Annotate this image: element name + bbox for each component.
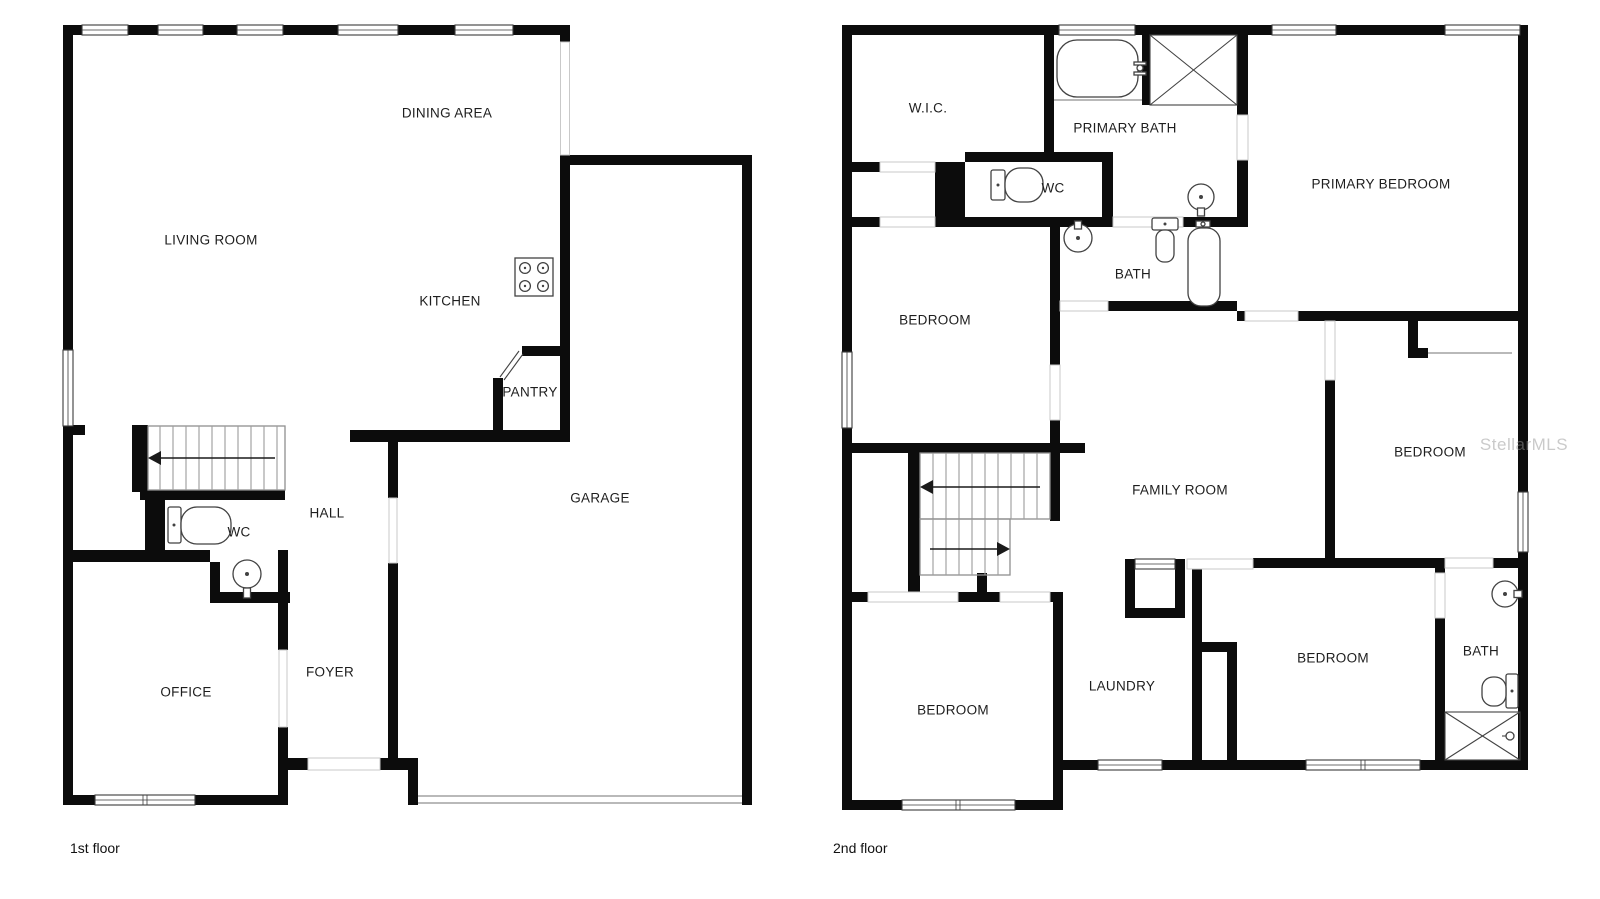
door-opening [389,498,397,563]
toilet-icon [1482,674,1518,708]
window [1445,25,1520,35]
room-label-family-room: FAMILY ROOM [1132,483,1228,498]
first-floor-windows [63,25,513,805]
room-label-wic: W.I.C. [909,101,948,116]
door-opening [1325,321,1335,380]
toilet-icon [991,168,1043,202]
bathtub-icon [1188,221,1220,306]
window [1098,760,1162,770]
room-label-bedroom-right: BEDROOM [1394,445,1466,460]
room-label-living-room: LIVING ROOM [164,233,257,248]
door-opening [1000,592,1050,602]
door-opening [868,592,958,602]
stairs-icon [148,426,285,490]
window [902,800,1015,810]
window [842,352,852,428]
room-label-wc-first: WC [227,525,250,540]
door-opening [1245,311,1298,321]
room-label-hall: HALL [310,506,345,521]
floor-caption-second: 2nd floor [833,840,887,856]
door-opening [279,650,287,727]
pantry-door-leaf [500,351,523,380]
room-label-office: OFFICE [160,685,211,700]
toilet-icon [168,507,231,544]
room-label-primary-bath: PRIMARY BATH [1073,121,1176,136]
room-label-wc-second: WC [1041,181,1064,196]
door-opening [1445,558,1493,568]
door-opening [1060,301,1108,311]
window [82,25,128,35]
stairs-icon [920,453,1050,575]
window [455,25,513,35]
room-label-laundry: LAUNDRY [1089,679,1155,694]
window [95,795,195,805]
door-opening [1435,573,1445,618]
room-label-dining-area: DINING AREA [402,106,492,121]
door-opening [1050,365,1060,420]
window [158,25,203,35]
room-label-bedroom-middle: BEDROOM [1297,651,1369,666]
window [1306,760,1420,770]
room-label-kitchen: KITCHEN [419,294,480,309]
window [1272,25,1336,35]
bathtub-icon [1057,40,1146,97]
room-label-bath-lower: BATH [1463,644,1499,659]
window [63,350,73,426]
sink-icon [1188,184,1214,216]
second-floor-plan [842,25,1528,810]
floor-plan-drawing [0,0,1600,899]
second-floor-walls [842,25,1528,810]
shower-icon [1150,35,1237,105]
stove-icon [515,258,553,296]
toilet-icon [1152,218,1178,262]
door-opening [1187,559,1253,569]
window [1059,25,1135,35]
room-label-bath-middle: BATH [1115,267,1151,282]
room-label-pantry: PANTRY [502,385,557,400]
room-label-bedroom-upper-left: BEDROOM [899,313,971,328]
door-opening [880,162,935,172]
room-label-primary-bedroom: PRIMARY BEDROOM [1311,177,1450,192]
floor-caption-first: 1st floor [70,840,120,856]
window [338,25,398,35]
window [1135,559,1175,569]
window [1518,492,1528,552]
door-opening [880,217,935,227]
door-opening [308,758,380,770]
room-label-garage: GARAGE [570,491,630,506]
room-label-foyer: FOYER [306,665,354,680]
door-opening [561,42,570,155]
sink-icon [1492,581,1522,607]
watermark: StellarMLS [1480,435,1568,455]
window [237,25,283,35]
second-floor-windows [842,25,1528,810]
floor-plan-page: LIVING ROOM DINING AREA KITCHEN PANTRY H… [0,0,1600,899]
shower-icon [1445,712,1520,760]
room-label-bedroom-lower-left: BEDROOM [917,703,989,718]
door-opening [1237,115,1248,160]
